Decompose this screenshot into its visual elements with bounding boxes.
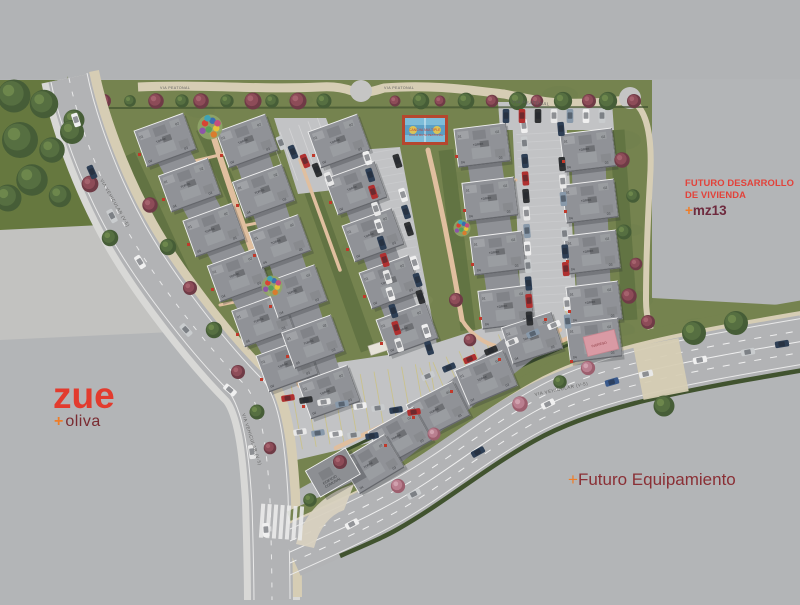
svg-text:CICLO RUTA PEATONAL: CICLO RUTA PEATONAL <box>409 133 444 137</box>
svg-text:VIA PEATONAL: VIA PEATONAL <box>160 86 190 90</box>
svg-text:+mz13: +mz13 <box>685 203 727 218</box>
svg-text:+Futuro Equipamiento: +Futuro Equipamiento <box>568 470 736 489</box>
svg-text:+oliva: +oliva <box>54 413 101 430</box>
svg-text:VIA PEATONAL: VIA PEATONAL <box>384 86 414 90</box>
svg-text:FUTURO DESARROLLO: FUTURO DESARROLLO <box>685 177 794 188</box>
svg-text:zue: zue <box>53 375 115 416</box>
svg-text:CANCHA MULTIPLE: CANCHA MULTIPLE <box>409 128 441 132</box>
svg-text:DE VIVIENDA: DE VIVIENDA <box>685 189 746 200</box>
